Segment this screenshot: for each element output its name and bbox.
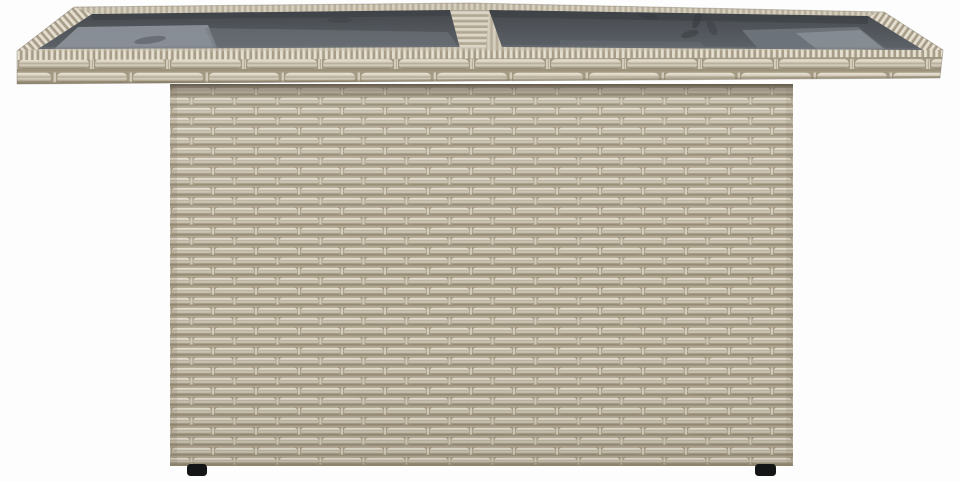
under-tabletop-shadow bbox=[170, 84, 793, 99]
base-bottom-edge bbox=[170, 462, 793, 466]
product-photo bbox=[0, 0, 960, 482]
table-base bbox=[170, 84, 793, 466]
table-top bbox=[17, 3, 943, 84]
base-left-edge-shade bbox=[170, 84, 177, 466]
right-foot bbox=[755, 464, 776, 476]
garden-table-illustration bbox=[0, 0, 960, 482]
base-right-edge-shade bbox=[786, 84, 793, 466]
base-sheen bbox=[170, 84, 793, 466]
left-foot bbox=[187, 464, 207, 476]
